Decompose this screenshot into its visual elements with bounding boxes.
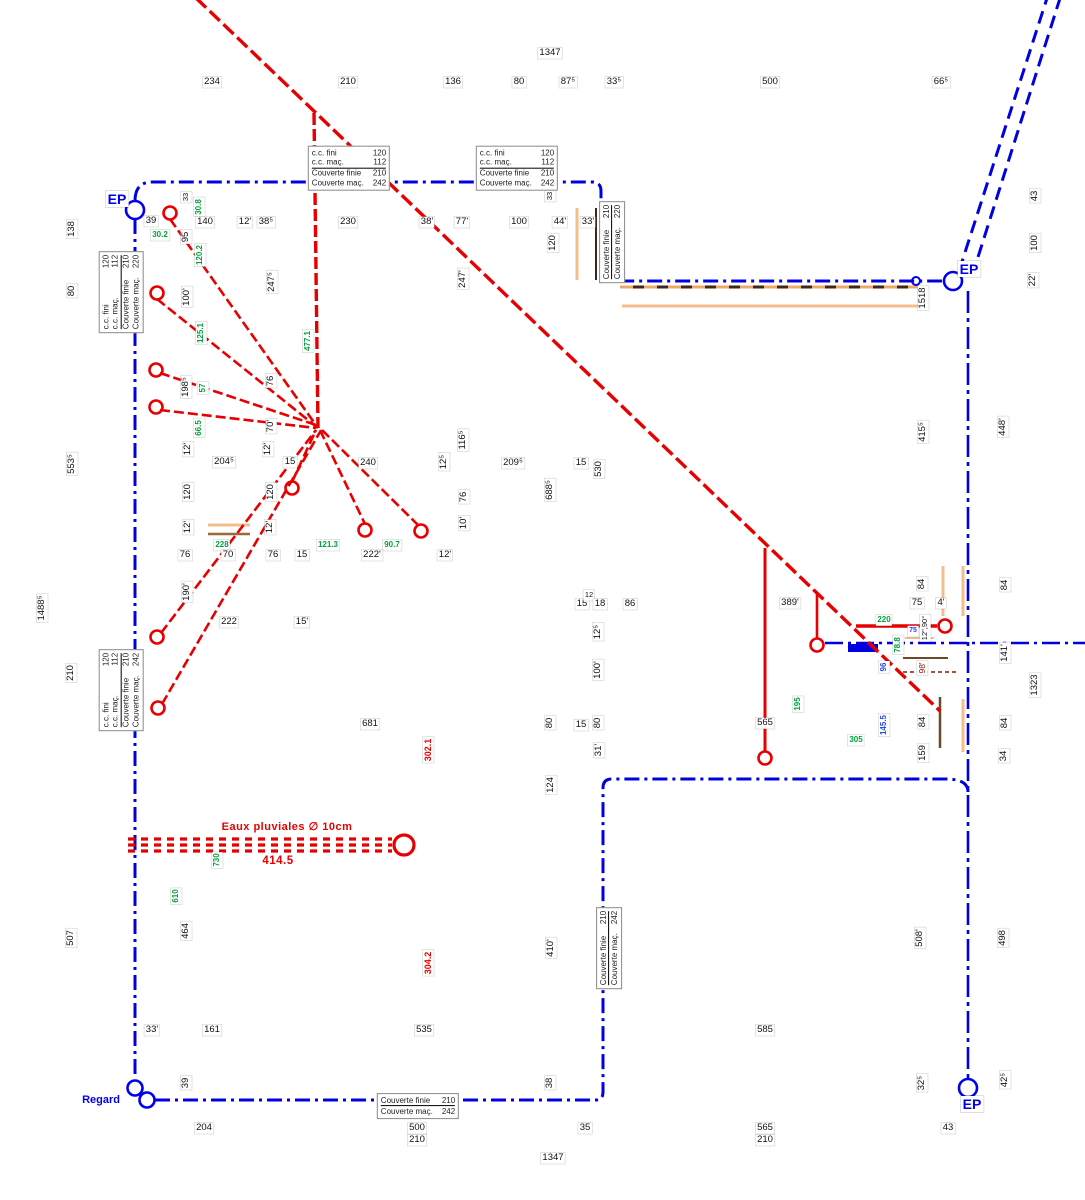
green-elevation-label: 610: [171, 888, 182, 904]
dim-label: 15: [295, 550, 309, 561]
dim-label: 42⁵: [1000, 1071, 1011, 1089]
red-annotation-label: 414.5: [261, 856, 295, 867]
green-elevation-label: 120.2: [195, 243, 206, 266]
dim-label: 38⁵: [257, 217, 275, 228]
dim-label: 1488⁵: [37, 594, 48, 622]
infobox-row: c.c. fini120: [101, 653, 110, 727]
green-elevation-label: 90.7: [383, 540, 402, 551]
cover-levels-infobox: Couverte finie210Couverte maç.242: [596, 907, 622, 989]
dim-label: 120: [548, 234, 559, 253]
dim-label: 4': [936, 598, 946, 609]
dim-label: 210: [756, 1135, 775, 1146]
infobox-value: 120: [541, 148, 554, 157]
dim-label: 77': [454, 217, 469, 228]
infobox-row: Couverte finie210: [602, 205, 613, 279]
ep-label: EP: [961, 1096, 984, 1112]
infobox-key: c.c. fini: [312, 148, 337, 157]
infobox-key: c.c. fini: [101, 304, 110, 329]
infobox-key: Couverte maç.: [613, 227, 622, 279]
infobox-row: Couverte finie210: [381, 1096, 455, 1107]
infobox-value: 120: [101, 255, 110, 268]
infobox-key: Couverte finie: [599, 936, 608, 985]
infobox-value: 242: [131, 653, 140, 666]
dim-label: 500: [408, 1123, 427, 1134]
dim-label: 507: [66, 929, 77, 948]
infobox-value: 112: [373, 158, 386, 167]
dim-label: 44': [552, 217, 567, 228]
dim-label: 1347: [538, 48, 562, 59]
dim-label: 410': [546, 938, 557, 959]
green-elevation-label: 477.1: [303, 329, 314, 352]
dim-label: 530: [594, 460, 605, 479]
ep-label: EP: [106, 191, 129, 207]
dim-label: 389': [780, 598, 801, 609]
dim-label: 35: [578, 1123, 592, 1134]
infobox-row: Couverte maç.242: [312, 178, 386, 187]
dim-label: 240: [359, 458, 378, 469]
green-elevation-label: 30.2: [151, 230, 170, 241]
dim-label: 12': [183, 519, 194, 534]
dim-label: 34: [999, 749, 1010, 763]
green-elevation-label: 30.8: [194, 198, 205, 217]
cover-levels-infobox: c.c. fini120c.c. maç.112Couverte finie21…: [308, 146, 390, 191]
dim-label: 1518: [918, 286, 929, 310]
dim-label: 222: [220, 617, 239, 628]
dim-label: 247⁵: [267, 271, 278, 294]
dim-label: 100: [510, 217, 529, 228]
regard-label: Regard: [82, 1094, 120, 1106]
cover-levels-infobox: c.c. fini120c.c. maç.112Couverte finie21…: [99, 649, 144, 731]
infobox-value: 112: [111, 255, 120, 268]
dim-label: 33': [144, 1025, 159, 1036]
green-elevation-label: 220: [876, 615, 892, 626]
dim-label: 210: [408, 1135, 427, 1146]
infobox-row: c.c. maç.112: [480, 158, 554, 169]
dim-label: 15: [574, 458, 588, 469]
dim-label: 415⁵: [918, 421, 929, 444]
dim-label: 15': [294, 617, 309, 628]
dim-label: 12⁵: [593, 623, 604, 641]
red-annotation-label: Eaux pluviales ∅ 10cm: [220, 822, 354, 833]
dim-label: 86: [623, 599, 637, 610]
dim-label: 31': [594, 742, 605, 757]
infobox-row: c.c. maç.112: [111, 653, 122, 727]
green-elevation-label: 121.3: [316, 540, 339, 551]
dim-label: 39: [144, 216, 158, 227]
red-note-label: 304.2: [423, 950, 434, 976]
dim-label: 124: [546, 776, 557, 795]
dim-label: 15: [283, 457, 297, 468]
site-plan-drawing: 13472342101368087⁵33⁵50066⁵333914012'38⁵…: [0, 0, 1085, 1200]
infobox-value: 242: [373, 178, 386, 187]
infobox-value: 210: [122, 653, 131, 666]
blue-note-label: 96: [879, 661, 890, 673]
dim-label: 80: [593, 716, 604, 730]
infobox-key: c.c. maç.: [312, 158, 344, 167]
infobox-row: Couverte finie210: [480, 169, 554, 178]
infobox-row: Couverte finie210: [312, 169, 386, 178]
dim-label: 585: [756, 1025, 775, 1036]
dim-label: 140: [196, 217, 215, 228]
green-elevation-label: 730: [212, 852, 223, 868]
ep-label: EP: [958, 261, 981, 277]
dim-label: 100: [1030, 234, 1041, 253]
infobox-value: 120: [373, 148, 386, 157]
dim-label: 15: [574, 720, 588, 731]
dim-label: 198⁵: [181, 376, 192, 399]
infobox-value: 242: [442, 1107, 455, 1116]
infobox-key: Couverte maç.: [480, 178, 532, 187]
dim-label: 80: [545, 716, 556, 730]
infobox-value: 210: [122, 255, 131, 268]
infobox-row: Couverte maç.220: [131, 255, 140, 329]
dim-label: 12",90°: [920, 614, 931, 641]
dim-label: 33': [580, 217, 595, 228]
green-elevation-label: 195: [793, 696, 804, 712]
dim-label: 38: [545, 1076, 556, 1090]
label-layer: 13472342101368087⁵33⁵50066⁵333914012'38⁵…: [0, 0, 1085, 1200]
green-elevation-label: 125.1: [196, 321, 207, 344]
dim-label: 95: [181, 230, 192, 244]
dim-label: 76: [459, 490, 470, 504]
infobox-row: c.c. fini120: [312, 148, 386, 157]
infobox-row: Couverte maç.242: [131, 653, 140, 727]
dim-label: 500: [761, 77, 780, 88]
red-note-label: 302.1: [423, 737, 434, 763]
infobox-key: c.c. maç.: [111, 695, 120, 727]
dim-label: 116⁵: [458, 429, 469, 451]
infobox-key: Couverte maç.: [381, 1107, 433, 1116]
cover-levels-infobox: Couverte finie210Couverte maç.220: [599, 201, 625, 283]
cover-levels-infobox: c.c. fini120c.c. maç.112Couverte finie21…: [99, 251, 144, 333]
dim-label: 87⁵: [559, 77, 577, 88]
dim-label: 12': [183, 441, 194, 456]
dim-label: 76: [266, 550, 280, 561]
dim-label: 39: [181, 1076, 192, 1090]
infobox-key: Couverte finie: [381, 1096, 430, 1105]
infobox-row: Couverte finie210: [599, 911, 610, 985]
dim-label: 22': [1028, 272, 1039, 287]
infobox-value: 210: [541, 169, 554, 178]
dim-label: 100': [593, 660, 604, 681]
infobox-row: c.c. fini120: [480, 148, 554, 157]
dim-label: 100': [182, 287, 193, 308]
blue-note-label: 75: [908, 626, 919, 637]
infobox-value: 220: [613, 205, 622, 218]
green-elevation-label: 78.8: [893, 636, 904, 655]
infobox-row: Couverte finie210: [122, 653, 131, 727]
infobox-row: Couverte maç.242: [480, 178, 554, 187]
dim-label: 230: [339, 217, 358, 228]
infobox-key: Couverte maç.: [610, 933, 619, 985]
dim-label: 136: [444, 77, 463, 88]
infobox-key: Couverte finie: [312, 169, 361, 178]
dim-label: 12': [437, 550, 452, 561]
dim-label: 12': [265, 519, 276, 534]
dim-label: 76: [266, 374, 277, 388]
dim-label: 80: [512, 77, 526, 88]
dim-label: 84: [1000, 578, 1011, 592]
infobox-key: c.c. maç.: [480, 158, 512, 167]
infobox-value: 210: [602, 205, 611, 218]
infobox-value: 210: [599, 911, 608, 924]
dim-label: 43: [941, 1123, 955, 1134]
infobox-key: c.c. fini: [480, 148, 505, 157]
infobox-row: Couverte maç.242: [381, 1107, 455, 1116]
dim-label: 84: [1000, 716, 1011, 730]
dim-label: 681: [361, 719, 380, 730]
dim-label: 33: [545, 190, 556, 201]
infobox-row: c.c. maç.112: [111, 255, 122, 329]
dim-label: 234: [203, 77, 222, 88]
dim-label: 18: [593, 599, 607, 610]
infobox-key: c.c. maç.: [111, 297, 120, 329]
infobox-key: c.c. fini: [101, 702, 110, 727]
dim-label: 120: [183, 483, 194, 502]
infobox-key: Couverte finie: [122, 678, 131, 727]
infobox-key: Couverte maç.: [131, 277, 140, 329]
dim-label: 1347: [541, 1153, 565, 1164]
infobox-key: Couverte finie: [122, 280, 131, 329]
infobox-key: Couverte finie: [480, 169, 529, 178]
dim-label: 43: [1030, 189, 1041, 203]
infobox-row: c.c. maç.112: [312, 158, 386, 169]
cover-levels-infobox: Couverte finie210Couverte maç.242: [377, 1093, 459, 1119]
dim-label: 247': [458, 269, 469, 290]
dim-label: 159: [918, 744, 929, 763]
dim-label: 10': [459, 515, 470, 530]
dim-label: 688⁵: [545, 479, 556, 502]
dim-label: 84: [918, 715, 929, 729]
darkred-note-label: 98': [917, 661, 928, 675]
infobox-value: 242: [541, 178, 554, 187]
dim-label: 553⁵: [67, 453, 78, 476]
dim-label: 210: [339, 77, 358, 88]
dim-label: 204⁵: [213, 457, 236, 468]
infobox-value: 220: [131, 255, 140, 268]
dim-label: 12⁵: [439, 453, 450, 471]
infobox-value: 112: [541, 158, 554, 167]
dim-label: 138: [67, 220, 78, 239]
dim-label: 464: [181, 922, 192, 941]
infobox-key: Couverte finie: [602, 230, 611, 279]
blue-note-label: 145.5: [879, 713, 890, 736]
dim-label: 70': [266, 418, 277, 433]
dim-label: 66⁵: [932, 77, 950, 88]
dim-label: 80: [67, 284, 78, 298]
green-elevation-label: 66.5: [194, 419, 205, 438]
dim-label: 161: [203, 1025, 222, 1036]
dim-label: 222': [362, 550, 383, 561]
dim-label: 565: [756, 718, 775, 729]
infobox-value: 242: [610, 911, 619, 924]
green-elevation-label: 305: [848, 735, 864, 746]
dim-label: 498: [998, 929, 1009, 948]
dim-label: 75: [910, 598, 924, 609]
dim-label: 1323: [1030, 673, 1041, 697]
dim-label: 209⁵: [502, 458, 525, 469]
cover-levels-infobox: c.c. fini120c.c. maç.112Couverte finie21…: [476, 146, 558, 191]
infobox-row: c.c. fini120: [101, 255, 110, 329]
infobox-row: Couverte maç.220: [613, 205, 622, 279]
infobox-value: 210: [373, 169, 386, 178]
dim-label: 15: [575, 599, 589, 610]
dim-label: 32⁵: [917, 1074, 928, 1092]
dim-label: 70: [221, 550, 235, 561]
dim-label: 84: [917, 577, 928, 591]
infobox-key: Couverte maç.: [131, 675, 140, 727]
dim-label: 565: [756, 1123, 775, 1134]
infobox-value: 210: [442, 1096, 455, 1105]
dim-label: 508': [915, 928, 926, 949]
dim-label: 210: [66, 664, 77, 683]
dim-label: 190': [182, 582, 193, 603]
dim-label: 141': [1000, 643, 1011, 664]
dim-label: 448': [998, 417, 1009, 438]
dim-label: 204: [195, 1123, 214, 1134]
dim-label: 535: [415, 1025, 434, 1036]
dim-label: 76: [178, 550, 192, 561]
dim-label: 120: [266, 483, 277, 502]
infobox-value: 112: [111, 653, 120, 666]
infobox-row: Couverte finie210: [122, 255, 131, 329]
dim-label: 38': [419, 217, 434, 228]
dim-label: 33⁵: [605, 77, 623, 88]
infobox-value: 120: [101, 653, 110, 666]
dim-label: 12': [237, 217, 252, 228]
dim-label: 33: [181, 191, 192, 202]
infobox-row: Couverte maç.242: [610, 911, 619, 985]
green-elevation-label: 57: [198, 382, 209, 394]
infobox-key: Couverte maç.: [312, 178, 364, 187]
dim-label: 12': [263, 441, 274, 456]
